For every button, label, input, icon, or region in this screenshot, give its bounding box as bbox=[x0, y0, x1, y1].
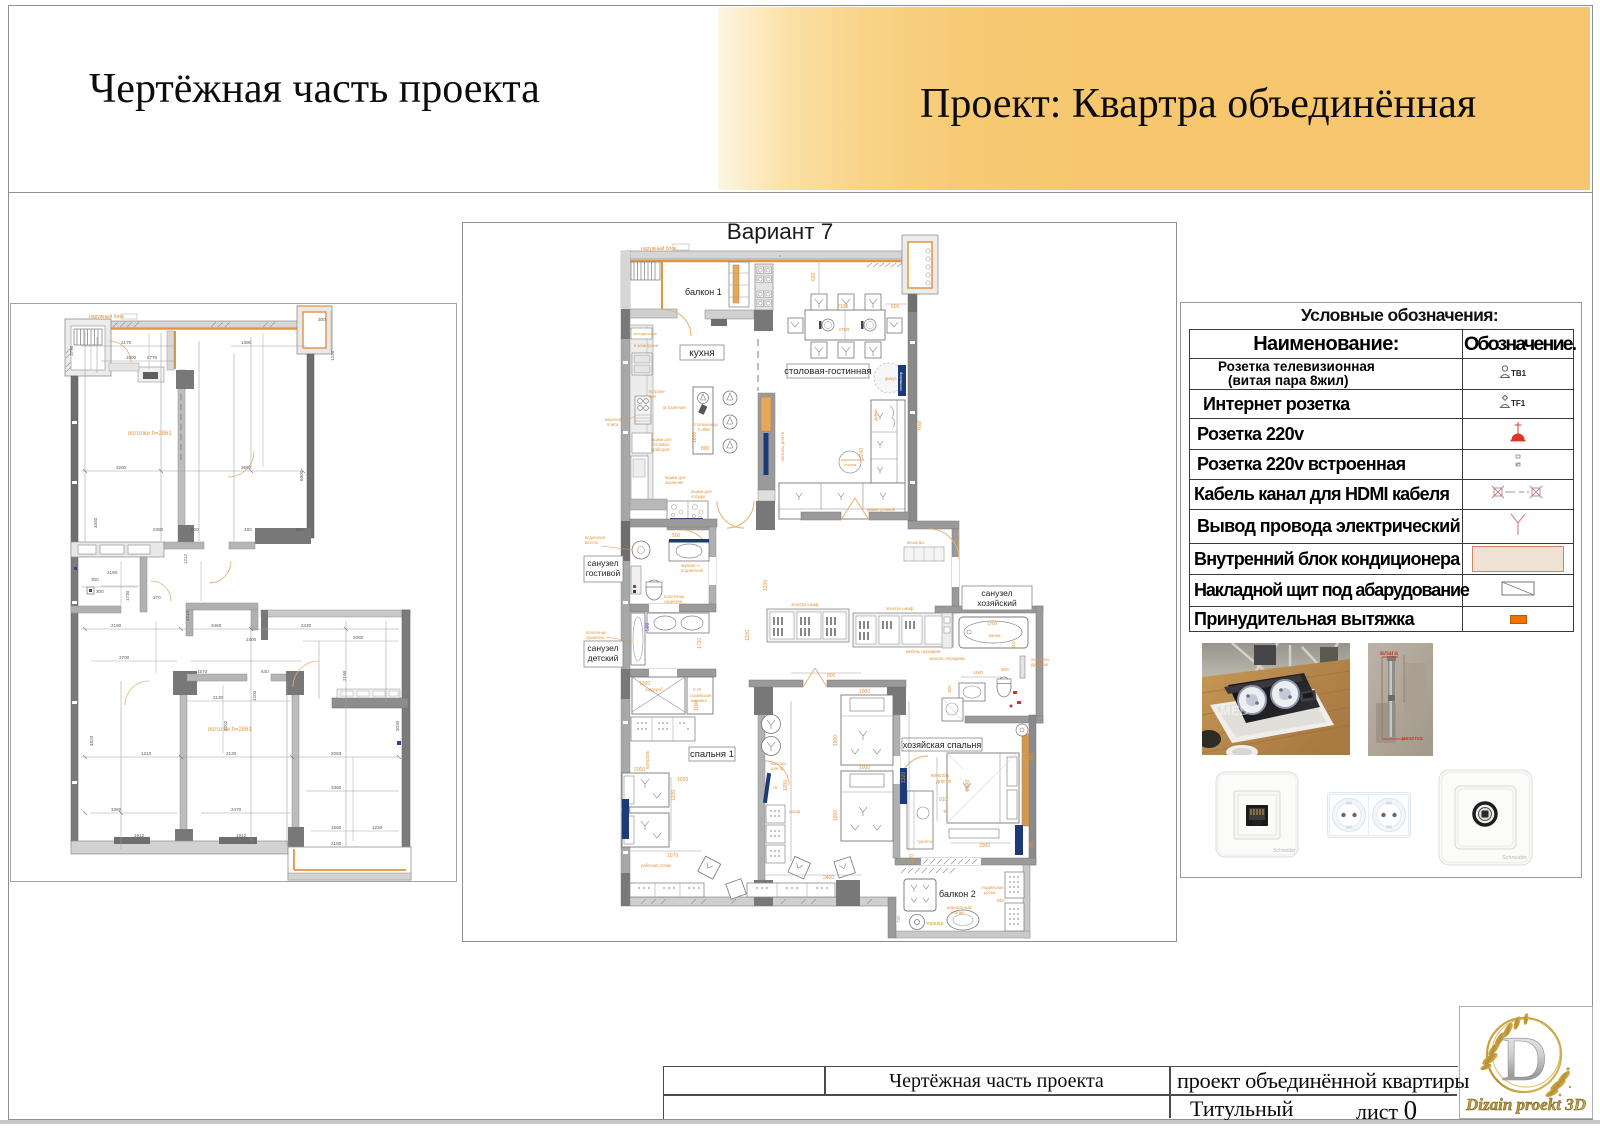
svg-text:3260: 3260 bbox=[116, 465, 127, 470]
svg-text:300: 300 bbox=[947, 685, 952, 693]
svg-text:1230: 1230 bbox=[372, 825, 383, 830]
svg-text:фикус: фикус bbox=[885, 376, 897, 381]
svg-text:для тв: для тв bbox=[936, 779, 951, 785]
svg-text:1212: 1212 bbox=[183, 553, 188, 564]
svg-text:холодильник: холодильник bbox=[633, 331, 657, 336]
svg-text:3340: 3340 bbox=[93, 517, 98, 528]
svg-text:4820: 4820 bbox=[89, 735, 94, 746]
svg-text:влага: влага bbox=[1380, 650, 1398, 657]
svg-text:D: D bbox=[1501, 1023, 1547, 1094]
svg-text:для тв: для тв bbox=[771, 766, 784, 771]
svg-text:санузел: санузел bbox=[981, 588, 1012, 598]
svg-text:столовая-гостинная: столовая-гостинная bbox=[784, 366, 871, 377]
svg-text:Вариант 7: Вариант 7 bbox=[727, 223, 834, 244]
svg-text:3650: 3650 bbox=[241, 465, 252, 470]
svg-text:балкон 1: балкон 1 bbox=[685, 287, 722, 297]
svg-text:900: 900 bbox=[1001, 667, 1009, 672]
svg-text:зеркало передвиж: зеркало передвиж bbox=[929, 656, 965, 661]
svg-text:1020: 1020 bbox=[677, 777, 688, 783]
svg-text:столик: столик bbox=[951, 910, 964, 915]
svg-text:1220: 1220 bbox=[330, 350, 335, 361]
svg-text:тв: тв bbox=[943, 809, 948, 815]
svg-text:800: 800 bbox=[191, 527, 199, 532]
svg-text:встроенная: встроенная bbox=[663, 405, 685, 410]
svg-text:сушитель: сушитель bbox=[586, 635, 605, 640]
svg-text:1390: 1390 bbox=[241, 340, 252, 345]
svg-text:1070: 1070 bbox=[667, 853, 678, 859]
svg-text:800: 800 bbox=[827, 673, 836, 679]
svg-text:1800: 1800 bbox=[833, 810, 839, 821]
svg-text:300: 300 bbox=[1029, 840, 1035, 849]
svg-text:1200: 1200 bbox=[783, 780, 789, 791]
svg-text:2190: 2190 bbox=[342, 670, 347, 681]
svg-text:910: 910 bbox=[1011, 641, 1016, 649]
svg-text:хозяйская спальня: хозяйская спальня bbox=[903, 740, 982, 750]
svg-text:ванна: ванна bbox=[989, 633, 1001, 638]
svg-text:1800: 1800 bbox=[692, 432, 698, 443]
svg-text:туалетн: туалетн bbox=[917, 839, 933, 844]
svg-text:1570: 1570 bbox=[197, 669, 208, 674]
svg-text:доска: доска bbox=[984, 890, 996, 895]
svg-text:ТВ1: ТВ1 bbox=[1511, 369, 1527, 378]
svg-text:ватель: ватель bbox=[585, 540, 599, 545]
svg-text:санузел: санузел bbox=[587, 643, 618, 653]
svg-text:2380: 2380 bbox=[153, 527, 164, 532]
svg-text:910: 910 bbox=[939, 797, 948, 803]
svg-text:370: 370 bbox=[153, 595, 161, 600]
svg-text:1200: 1200 bbox=[763, 580, 769, 591]
svg-text:тв: тв bbox=[773, 785, 778, 790]
svg-text:2470: 2470 bbox=[231, 807, 242, 812]
svg-text:С М: С М bbox=[693, 687, 701, 692]
svg-text:сушитель: сушитель bbox=[664, 599, 683, 604]
svg-text:2400: 2400 bbox=[246, 637, 257, 642]
svg-text:Dizain proekt 3D: Dizain proekt 3D bbox=[1465, 1095, 1586, 1114]
svg-text:ная: ная bbox=[649, 394, 656, 399]
svg-text:кухня: кухня bbox=[689, 348, 714, 359]
svg-text:640: 640 bbox=[261, 669, 269, 674]
svg-text:2000: 2000 bbox=[634, 767, 645, 773]
svg-text:2430: 2430 bbox=[301, 623, 312, 628]
svg-text:в зоне кухни: в зоне кухни bbox=[634, 343, 659, 348]
svg-text:спальня 1: спальня 1 bbox=[690, 749, 734, 760]
svg-text:1912: 1912 bbox=[236, 833, 247, 838]
svg-text:2100: 2100 bbox=[837, 304, 848, 310]
svg-text:душевая: душевая bbox=[1031, 662, 1048, 667]
svg-text:h=850: h=850 bbox=[698, 427, 710, 432]
svg-text:4210: 4210 bbox=[185, 610, 190, 621]
svg-text:480: 480 bbox=[244, 527, 252, 532]
svg-text:300: 300 bbox=[96, 589, 104, 594]
svg-text:1000: 1000 bbox=[859, 765, 870, 771]
svg-text:консоль: консоль bbox=[645, 750, 651, 769]
svg-text:потолки h=2861: потолки h=2861 bbox=[128, 431, 172, 437]
svg-text:6770: 6770 bbox=[147, 355, 158, 360]
svg-text:6900: 6900 bbox=[299, 470, 304, 481]
svg-text:MED: MED bbox=[1220, 703, 1249, 718]
svg-text:вешалка: вешалка bbox=[907, 540, 925, 545]
svg-text:300: 300 bbox=[318, 317, 326, 322]
svg-text:7180: 7180 bbox=[917, 420, 922, 431]
svg-text:TF1: TF1 bbox=[1511, 399, 1526, 408]
svg-text:1200: 1200 bbox=[252, 690, 257, 701]
svg-text:1200: 1200 bbox=[671, 790, 677, 801]
svg-text:3360: 3360 bbox=[111, 807, 122, 812]
svg-text:балкон 2: балкон 2 bbox=[939, 889, 976, 899]
svg-text:3460: 3460 bbox=[211, 623, 222, 628]
svg-text:1200: 1200 bbox=[745, 630, 751, 641]
svg-text:650: 650 bbox=[997, 898, 1005, 903]
svg-text:3360: 3360 bbox=[331, 785, 342, 790]
svg-text:1210: 1210 bbox=[141, 751, 152, 756]
svg-text:гостивой: гостивой bbox=[586, 568, 621, 578]
svg-text:2190: 2190 bbox=[107, 570, 118, 575]
svg-text:1000: 1000 bbox=[694, 700, 700, 711]
svg-text:1202: 1202 bbox=[223, 720, 228, 731]
svg-text:1912: 1912 bbox=[134, 833, 145, 838]
svg-text:1000: 1000 bbox=[126, 355, 137, 360]
svg-text:2080: 2080 bbox=[353, 635, 364, 640]
svg-text:мебель передвиж: мебель передвиж bbox=[906, 649, 941, 654]
svg-text:500: 500 bbox=[672, 533, 681, 539]
svg-text:730: 730 bbox=[896, 915, 901, 923]
svg-text:2190: 2190 bbox=[111, 623, 122, 628]
svg-text:800: 800 bbox=[701, 446, 710, 452]
svg-text:2170: 2170 bbox=[121, 340, 132, 345]
svg-text:хозяйский: хозяйский bbox=[977, 598, 1017, 608]
svg-text:хранения: хранения bbox=[665, 480, 683, 485]
svg-text:1000: 1000 bbox=[859, 689, 870, 695]
svg-text:2130: 2130 bbox=[226, 751, 237, 756]
svg-text:620: 620 bbox=[811, 272, 817, 281]
svg-text:3030: 3030 bbox=[395, 720, 400, 731]
svg-text:телевизор: телевизор bbox=[898, 371, 903, 391]
svg-text:1790: 1790 bbox=[69, 345, 74, 356]
svg-text:Schneider: Schneider bbox=[1273, 848, 1296, 854]
svg-text:1200: 1200 bbox=[639, 681, 650, 687]
svg-text:1560: 1560 bbox=[331, 825, 342, 830]
svg-text:2000: 2000 bbox=[979, 843, 990, 849]
svg-text:подсветкой: подсветкой bbox=[681, 568, 704, 573]
svg-text:санузел: санузел bbox=[587, 558, 618, 568]
svg-text:1320: 1320 bbox=[909, 854, 915, 865]
svg-text:2180: 2180 bbox=[331, 841, 342, 846]
svg-text:приборов: приборов bbox=[651, 447, 670, 452]
svg-text:600: 600 bbox=[891, 304, 900, 310]
svg-text:диван: диван bbox=[873, 409, 878, 421]
svg-text:2400: 2400 bbox=[823, 875, 834, 881]
svg-text:столик: столик bbox=[844, 462, 856, 467]
svg-text:500: 500 bbox=[645, 622, 651, 631]
svg-text:1730: 1730 bbox=[125, 590, 130, 601]
svg-text:2083: 2083 bbox=[331, 751, 342, 756]
svg-text:300: 300 bbox=[91, 577, 99, 582]
svg-text:электро шкаф: электро шкаф bbox=[791, 602, 819, 607]
svg-text:консоль для тв: консоль для тв bbox=[780, 431, 785, 461]
svg-text:потолки h=2861: потолки h=2861 bbox=[208, 727, 252, 733]
svg-text:1160: 1160 bbox=[973, 670, 983, 675]
svg-text:800: 800 bbox=[296, 527, 304, 532]
svg-text:1700: 1700 bbox=[987, 621, 998, 626]
svg-text:торшер: торшер bbox=[926, 921, 944, 927]
svg-text:1800: 1800 bbox=[833, 735, 839, 746]
svg-text:360: 360 bbox=[1029, 752, 1035, 761]
svg-text:Schneider: Schneider bbox=[1502, 855, 1528, 861]
svg-text:плита: плита bbox=[607, 422, 619, 427]
svg-text:посуды: посуды bbox=[691, 494, 705, 499]
svg-text:1720: 1720 bbox=[697, 638, 703, 649]
svg-text:2700: 2700 bbox=[119, 655, 130, 660]
svg-text:стол: стол bbox=[839, 327, 849, 333]
svg-text:детский: детский bbox=[588, 653, 619, 663]
svg-text:2000: 2000 bbox=[965, 780, 971, 791]
svg-text:1320: 1320 bbox=[901, 772, 907, 783]
svg-text:гардероб: гардероб bbox=[645, 687, 663, 692]
svg-text:рабочий столик: рабочий столик bbox=[641, 863, 671, 868]
svg-text:диван угловой: диван угловой bbox=[867, 507, 896, 512]
svg-text:2130: 2130 bbox=[213, 695, 224, 700]
svg-text:электро шкаф: электро шкаф bbox=[886, 606, 914, 611]
